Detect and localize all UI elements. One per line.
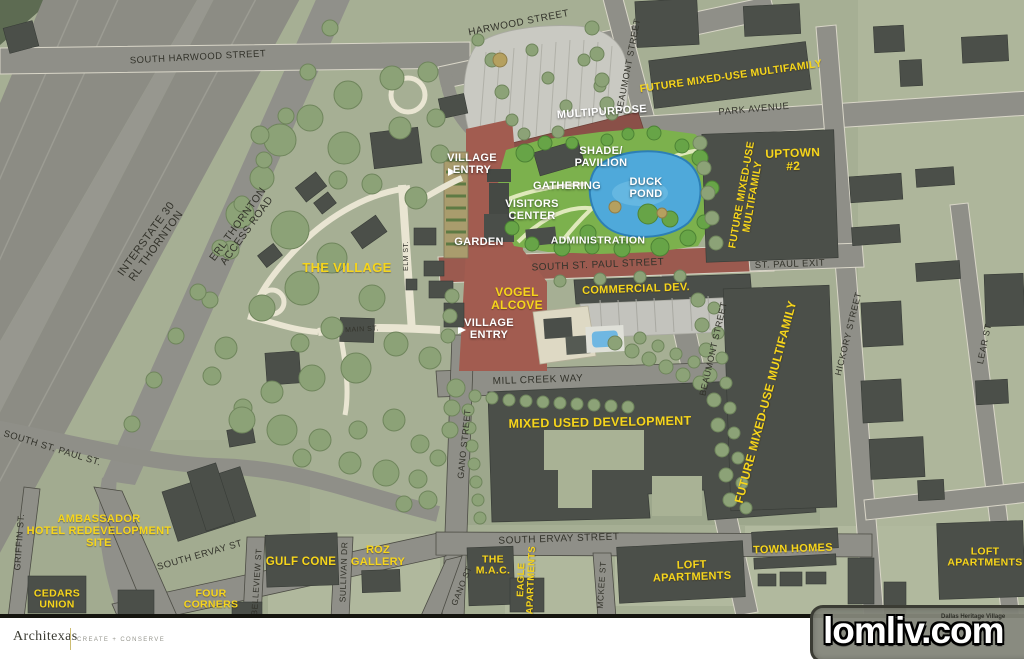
tree-icon	[538, 136, 552, 150]
building	[743, 4, 800, 37]
tree-icon	[168, 328, 184, 344]
tree-icon	[719, 468, 733, 482]
tree-icon	[389, 117, 411, 139]
tree-icon	[554, 240, 570, 256]
tree-icon	[642, 352, 656, 366]
tree-icon	[299, 365, 325, 391]
tree-icon	[441, 329, 455, 343]
building	[758, 574, 776, 586]
tree-icon	[688, 356, 700, 368]
tree-icon	[468, 458, 480, 470]
site-plan-map: HARWOOD STREETSOUTH HARWOOD STREETBEAUMO…	[0, 0, 1024, 659]
footer-divider	[70, 628, 71, 650]
building	[915, 167, 954, 188]
tree-icon	[329, 171, 347, 189]
building	[340, 317, 375, 342]
tree-icon	[609, 201, 621, 213]
tree-icon	[362, 174, 382, 194]
tree-icon	[595, 73, 609, 87]
tree-icon	[732, 452, 744, 464]
tree-icon	[680, 230, 696, 246]
tree-icon	[634, 332, 646, 344]
tree-icon	[146, 372, 162, 388]
tree-icon	[605, 400, 617, 412]
tree-icon	[526, 44, 538, 56]
tree-icon	[212, 240, 228, 256]
tree-icon	[251, 126, 269, 144]
tree-icon	[657, 208, 667, 218]
tree-icon	[493, 53, 507, 67]
tree-icon	[516, 144, 534, 162]
tree-icon	[486, 392, 498, 404]
tree-icon	[670, 348, 682, 360]
tree-icon	[674, 270, 686, 282]
tree-icon	[614, 241, 630, 257]
tree-icon	[464, 422, 476, 434]
tree-icon	[405, 187, 427, 209]
tree-icon	[250, 166, 274, 190]
building	[362, 569, 401, 592]
tree-icon	[445, 289, 459, 303]
tree-icon	[234, 196, 250, 212]
building	[849, 173, 903, 203]
tree-icon	[383, 409, 405, 431]
tree-icon	[349, 421, 367, 439]
tree-icon	[537, 396, 549, 408]
building	[917, 479, 944, 500]
tree-icon	[264, 124, 296, 156]
tree-icon	[554, 397, 566, 409]
building	[975, 379, 1008, 405]
building	[232, 602, 262, 614]
tree-icon	[736, 477, 748, 489]
tree-icon	[124, 416, 140, 432]
tree-icon	[267, 415, 297, 445]
tree-icon	[466, 440, 478, 452]
building	[118, 590, 154, 614]
tree-icon	[711, 418, 725, 432]
tree-icon	[300, 64, 316, 80]
building	[414, 228, 436, 245]
tree-icon	[715, 443, 729, 457]
watermark-text: lomliv.com	[823, 610, 1004, 652]
tree-icon	[317, 243, 347, 273]
tree-icon	[472, 34, 484, 46]
tree-icon	[585, 21, 599, 35]
tree-icon	[334, 81, 362, 109]
tree-icon	[723, 493, 737, 507]
tree-icon	[518, 128, 530, 140]
tree-icon	[571, 398, 583, 410]
tree-icon	[712, 327, 724, 339]
tree-icon	[716, 352, 728, 364]
building	[869, 437, 925, 480]
tree-icon	[552, 126, 564, 138]
building	[467, 546, 515, 606]
building	[915, 260, 960, 281]
tree-icon	[419, 347, 441, 369]
tree-icon	[309, 429, 331, 451]
tree-icon	[419, 491, 437, 509]
building	[848, 558, 874, 604]
tree-icon	[411, 435, 429, 453]
building	[851, 224, 900, 245]
tree-icon	[285, 271, 319, 305]
building	[899, 59, 922, 86]
tree-icon	[472, 494, 484, 506]
building	[752, 528, 839, 552]
tree-icon	[278, 108, 294, 124]
tree-icon	[328, 132, 360, 164]
tree-icon	[430, 450, 446, 466]
tree-icon	[693, 376, 707, 390]
tree-icon	[506, 114, 518, 126]
building	[635, 0, 699, 48]
building	[265, 533, 339, 587]
pond-highlight	[612, 180, 668, 206]
tree-icon	[638, 204, 658, 224]
tree-icon	[560, 100, 572, 112]
tree-icon	[447, 379, 465, 397]
tree-icon	[322, 20, 338, 36]
tree-icon	[720, 377, 732, 389]
tree-icon	[293, 449, 311, 467]
tree-icon	[724, 402, 736, 414]
building	[961, 35, 1008, 63]
tree-icon	[373, 460, 399, 486]
tree-icon	[427, 109, 445, 127]
tree-icon	[647, 126, 661, 140]
tree-icon	[588, 399, 600, 411]
building	[265, 351, 301, 385]
tree-icon	[740, 502, 752, 514]
building	[806, 572, 826, 584]
tree-icon	[622, 128, 634, 140]
tree-icon	[384, 332, 408, 356]
tree-icon	[580, 225, 596, 241]
tree-icon	[297, 105, 323, 131]
tree-icon	[608, 336, 622, 350]
tree-icon	[707, 393, 721, 407]
tree-icon	[701, 186, 715, 200]
area-garden	[444, 152, 468, 258]
tree-icon	[203, 367, 221, 385]
architexas-logo: Architexas	[13, 629, 78, 645]
tree-icon	[652, 340, 664, 352]
tree-icon	[321, 317, 343, 339]
tree-icon	[601, 134, 613, 146]
tree-icon	[708, 302, 720, 314]
tree-icon	[359, 285, 385, 311]
tree-icon	[693, 136, 707, 150]
building	[28, 576, 86, 613]
tree-icon	[578, 54, 590, 66]
tree-icon	[699, 343, 713, 357]
tree-icon	[442, 422, 458, 438]
tree-icon	[418, 62, 438, 82]
tree-icon	[503, 394, 515, 406]
tree-icon	[470, 476, 482, 488]
building	[406, 279, 417, 290]
tree-icon	[625, 344, 639, 358]
tree-icon	[554, 275, 566, 287]
tree-icon	[291, 334, 309, 352]
building	[510, 578, 544, 612]
tree-icon	[380, 66, 404, 90]
tree-icon	[462, 404, 474, 416]
tree-icon	[229, 407, 255, 433]
tree-icon	[495, 85, 509, 99]
tree-icon	[215, 337, 237, 359]
tree-icon	[339, 452, 361, 474]
tree-icon	[659, 360, 673, 374]
tree-icon	[709, 236, 723, 250]
tree-icon	[271, 211, 309, 249]
tree-icon	[190, 284, 206, 300]
tree-icon	[341, 353, 371, 383]
tree-icon	[705, 211, 719, 225]
building	[937, 521, 1024, 600]
watermark-badge: Dallas Heritage Village lomliv.com	[810, 605, 1024, 659]
tree-icon	[444, 400, 460, 416]
tree-icon	[622, 401, 634, 413]
building	[617, 541, 746, 604]
tree-icon	[525, 237, 539, 251]
tree-icon	[542, 72, 554, 84]
building	[424, 261, 444, 276]
tree-icon	[634, 271, 646, 283]
tree-icon	[443, 309, 457, 323]
tree-icon	[585, 240, 599, 254]
tree-icon	[600, 97, 614, 111]
tree-icon	[675, 139, 689, 153]
tree-icon	[474, 512, 486, 524]
tree-icon	[594, 273, 606, 285]
tree-icon	[261, 381, 283, 403]
building	[861, 379, 903, 423]
tree-icon	[590, 47, 604, 61]
building	[873, 25, 904, 53]
footer-tagline: CREATE + CONSERVE	[77, 637, 165, 643]
tree-icon	[676, 368, 690, 382]
tree-icon	[651, 238, 669, 256]
tree-icon	[256, 152, 272, 168]
tree-icon	[728, 427, 740, 439]
tree-icon	[691, 293, 705, 307]
tree-icon	[697, 161, 711, 175]
tree-icon	[566, 137, 578, 149]
tree-icon	[396, 496, 412, 512]
building	[861, 301, 903, 347]
tree-icon	[505, 221, 519, 235]
site-plan-drawing	[0, 0, 1024, 614]
tree-icon	[695, 318, 709, 332]
building	[780, 572, 802, 586]
building	[984, 273, 1024, 326]
tree-icon	[469, 390, 481, 402]
tree-icon	[431, 145, 449, 163]
tree-icon	[520, 395, 532, 407]
tree-icon	[249, 295, 275, 321]
tree-icon	[409, 470, 427, 488]
